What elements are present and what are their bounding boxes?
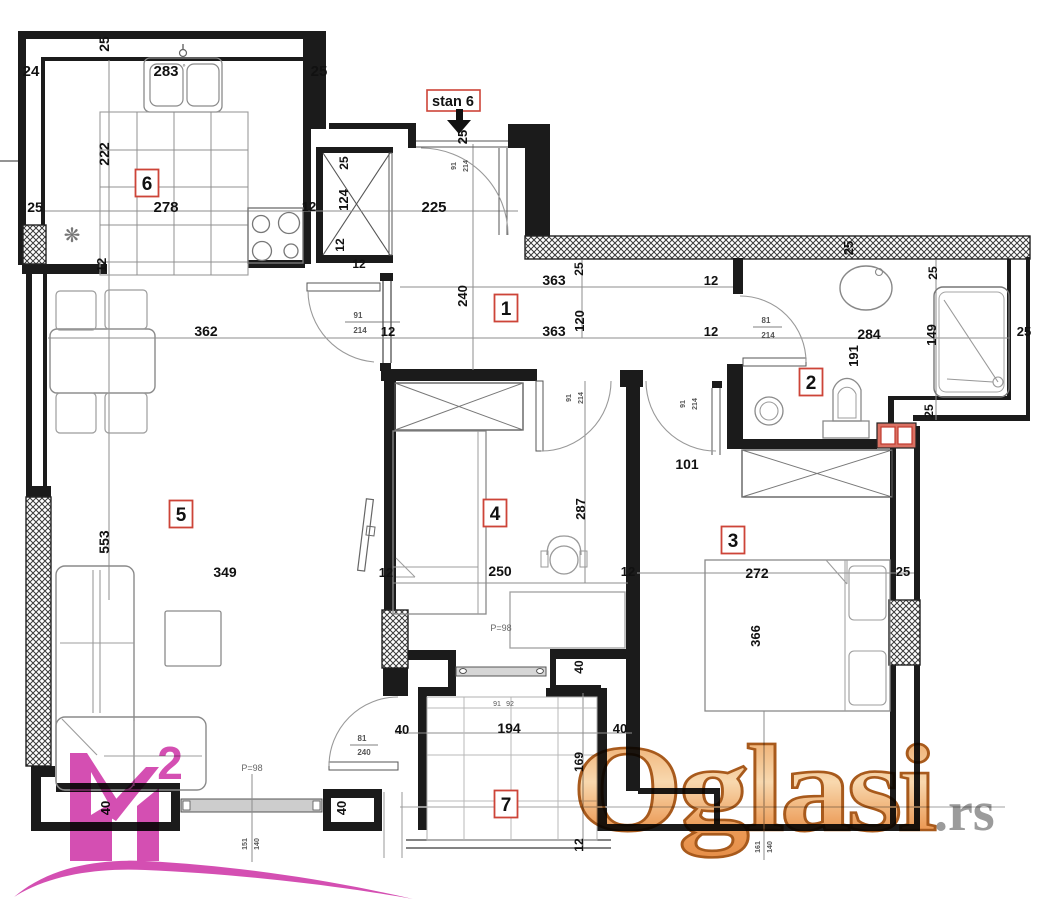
svg-text:6: 6 (142, 174, 153, 195)
svg-text:91: 91 (680, 400, 687, 408)
svg-text:25: 25 (311, 63, 328, 80)
svg-text:349: 349 (213, 564, 237, 580)
svg-text:214: 214 (692, 398, 699, 410)
svg-text:Oglasi: Oglasi (572, 720, 936, 858)
svg-text:140: 140 (254, 838, 261, 850)
svg-text:25: 25 (926, 266, 940, 280)
svg-text:149: 149 (924, 324, 939, 346)
svg-text:240: 240 (357, 748, 371, 757)
svg-text:553: 553 (96, 530, 112, 554)
svg-text:91: 91 (493, 701, 501, 708)
svg-text:272: 272 (745, 565, 769, 581)
svg-text:240: 240 (455, 285, 470, 307)
svg-text:363: 363 (542, 323, 566, 339)
svg-text:81: 81 (762, 316, 771, 325)
svg-text:40: 40 (395, 722, 409, 737)
svg-text:283: 283 (153, 63, 178, 80)
svg-text:225: 225 (421, 199, 446, 216)
svg-text:214: 214 (761, 331, 775, 340)
svg-text:12: 12 (94, 258, 109, 272)
svg-text:24: 24 (23, 63, 40, 80)
svg-text:191: 191 (846, 345, 861, 367)
svg-text:214: 214 (353, 326, 367, 335)
svg-text:P=98: P=98 (490, 623, 511, 633)
svg-text:91: 91 (566, 394, 573, 402)
svg-text:25: 25 (96, 36, 112, 52)
svg-text:362: 362 (194, 323, 218, 339)
svg-text:12: 12 (704, 273, 718, 288)
svg-text:91: 91 (354, 311, 363, 320)
svg-text:◦: ◦ (182, 60, 185, 70)
svg-text:25: 25 (27, 199, 43, 215)
svg-text:stan 6: stan 6 (432, 94, 474, 110)
svg-text:.rs: .rs (934, 781, 995, 843)
svg-text:2: 2 (806, 373, 817, 394)
svg-text:120: 120 (572, 310, 587, 332)
svg-text:284: 284 (857, 326, 881, 342)
svg-text:12: 12 (333, 238, 347, 252)
svg-text:40: 40 (572, 660, 586, 674)
svg-text:12: 12 (704, 324, 718, 339)
svg-text:194: 194 (497, 720, 521, 736)
svg-text:12: 12 (379, 565, 393, 580)
svg-text:25: 25 (841, 241, 856, 255)
svg-text:25: 25 (1017, 324, 1031, 339)
svg-text:124: 124 (336, 188, 351, 210)
svg-text:151: 151 (242, 838, 249, 850)
svg-text:P=98: P=98 (241, 763, 262, 773)
svg-text:5: 5 (176, 505, 187, 526)
svg-text:25: 25 (922, 404, 936, 418)
svg-text:25: 25 (896, 564, 910, 579)
svg-text:222: 222 (96, 142, 112, 166)
svg-text:2: 2 (157, 737, 183, 789)
svg-text:287: 287 (573, 498, 588, 520)
svg-text:92: 92 (506, 701, 514, 708)
svg-text:214: 214 (463, 160, 470, 172)
svg-text:363: 363 (542, 272, 566, 288)
svg-text:12: 12 (302, 199, 316, 214)
svg-text:366: 366 (748, 625, 763, 647)
svg-text:81: 81 (358, 734, 367, 743)
svg-text:1: 1 (501, 299, 512, 320)
svg-text:12: 12 (621, 564, 635, 579)
svg-text:3: 3 (728, 531, 739, 552)
svg-text:250: 250 (488, 563, 512, 579)
svg-text:25: 25 (337, 156, 351, 170)
svg-text:40: 40 (334, 801, 349, 815)
svg-text:❋: ❋ (64, 225, 81, 247)
svg-text:12: 12 (381, 324, 395, 339)
svg-text:278: 278 (153, 199, 178, 216)
svg-text:214: 214 (578, 392, 585, 404)
svg-text:4: 4 (490, 504, 501, 525)
svg-text:91: 91 (451, 162, 458, 170)
svg-text:7: 7 (501, 795, 512, 816)
svg-text:12: 12 (352, 257, 366, 271)
svg-text:25: 25 (572, 262, 586, 276)
svg-text:101: 101 (675, 456, 699, 472)
